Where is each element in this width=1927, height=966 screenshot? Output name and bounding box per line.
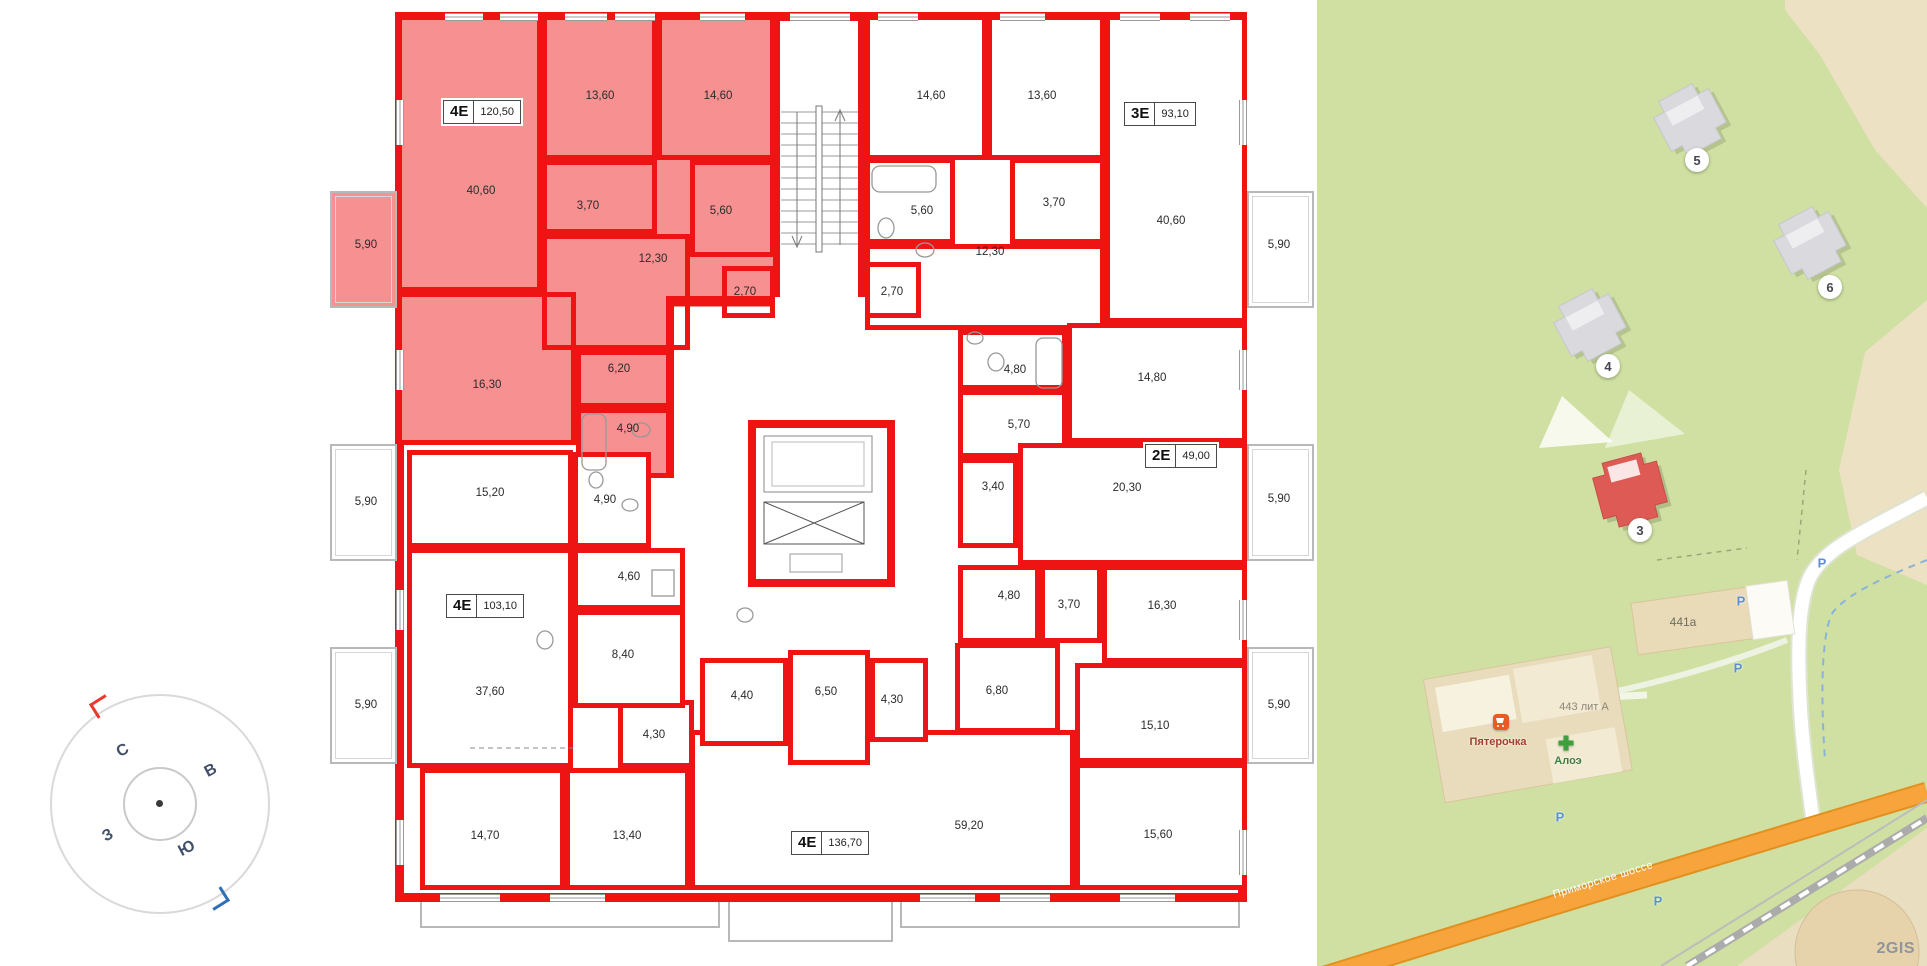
screenshot: 4Е 120,50 3Е 93,10 2Е 49,00 4Е 103,10 4Е… bbox=[0, 0, 1927, 966]
room-area-label: 4,30 bbox=[643, 729, 665, 741]
room-area-label: 4,80 bbox=[998, 590, 1020, 602]
apartment-type: 4Е bbox=[447, 595, 477, 617]
room bbox=[958, 565, 1040, 643]
room bbox=[865, 158, 955, 244]
building-badge-3[interactable]: 3 bbox=[1628, 518, 1652, 542]
room bbox=[542, 15, 657, 160]
window-bay bbox=[900, 902, 1240, 928]
room-area-label: 5,60 bbox=[911, 205, 933, 217]
room-area-label: 3,70 bbox=[1058, 599, 1080, 611]
window-bay bbox=[728, 902, 893, 942]
room-area-label: 5,90 bbox=[355, 699, 377, 711]
window bbox=[1120, 13, 1160, 21]
room-area-label: 6,80 bbox=[986, 685, 1008, 697]
room-area-label: 15,10 bbox=[1141, 720, 1170, 732]
room-area-label: 14,60 bbox=[917, 90, 946, 102]
parking-icon[interactable]: P bbox=[1654, 894, 1663, 909]
room bbox=[397, 292, 576, 445]
building-badge-4[interactable]: 4 bbox=[1596, 354, 1620, 378]
room-area-label: 3,40 bbox=[982, 481, 1004, 493]
parking-icon[interactable]: P bbox=[1556, 810, 1565, 825]
room-area-label: 5,90 bbox=[355, 239, 377, 251]
room-area-label: 20,30 bbox=[1113, 482, 1142, 494]
map-graphics bbox=[1317, 0, 1927, 966]
room-area-label: 4,30 bbox=[881, 694, 903, 706]
parking-icon[interactable]: P bbox=[1734, 661, 1743, 676]
room bbox=[788, 650, 870, 765]
apartment-area: 103,10 bbox=[477, 595, 523, 617]
shop-label[interactable]: Пятерочка bbox=[1469, 736, 1526, 748]
room-area-label: 14,80 bbox=[1138, 372, 1167, 384]
room-area-label: 4,40 bbox=[731, 690, 753, 702]
room-area-label: 12,30 bbox=[976, 246, 1005, 258]
room-area-label: 37,60 bbox=[476, 686, 505, 698]
apartment-area: 49,00 bbox=[1176, 445, 1216, 467]
window bbox=[1000, 894, 1050, 902]
room bbox=[1105, 15, 1247, 323]
room-area-label: 40,60 bbox=[1157, 215, 1186, 227]
floorplan-panel: 4Е 120,50 3Е 93,10 2Е 49,00 4Е 103,10 4Е… bbox=[0, 0, 1317, 966]
room-area-label: 13,40 bbox=[613, 830, 642, 842]
window bbox=[1190, 13, 1230, 21]
room bbox=[407, 450, 573, 548]
room-area-label: 15,60 bbox=[1144, 829, 1173, 841]
pharmacy-label[interactable]: Алоэ bbox=[1554, 755, 1581, 767]
apartment-type: 2Е bbox=[1146, 445, 1176, 467]
window bbox=[1239, 350, 1247, 390]
compass-center-dot bbox=[156, 800, 163, 807]
room-area-label: 3,70 bbox=[1043, 197, 1065, 209]
room bbox=[397, 15, 542, 292]
window bbox=[615, 13, 655, 21]
room-area-label: 8,40 bbox=[612, 649, 634, 661]
window bbox=[1000, 13, 1045, 21]
elevator-core bbox=[748, 420, 895, 587]
apartment-type: 4Е bbox=[444, 101, 474, 123]
window bbox=[1239, 600, 1247, 640]
window bbox=[920, 894, 975, 902]
room-area-label: 12,30 bbox=[639, 253, 668, 265]
room-area-label: 2,70 bbox=[881, 286, 903, 298]
room-area-label: 40,60 bbox=[467, 185, 496, 197]
apartment-label-box[interactable]: 4Е 136,70 bbox=[791, 831, 869, 855]
parking-icon[interactable]: P bbox=[1818, 556, 1827, 571]
room bbox=[700, 658, 788, 746]
room-area-label: 5,60 bbox=[710, 205, 732, 217]
window bbox=[396, 350, 404, 390]
room-area-label: 4,90 bbox=[617, 423, 639, 435]
window bbox=[396, 100, 404, 145]
window bbox=[1239, 100, 1247, 145]
apartment-type: 4Е bbox=[792, 832, 822, 854]
room bbox=[565, 768, 690, 890]
apartment-area: 136,70 bbox=[822, 832, 868, 854]
room bbox=[407, 548, 573, 768]
room-area-label: 13,60 bbox=[1028, 90, 1057, 102]
room-area-label: 4,60 bbox=[618, 571, 640, 583]
room-area-label: 3,70 bbox=[577, 200, 599, 212]
room-area-label: 14,60 bbox=[704, 90, 733, 102]
room-area-label: 4,90 bbox=[594, 494, 616, 506]
room bbox=[690, 160, 775, 257]
staircase bbox=[773, 21, 865, 297]
room bbox=[1075, 663, 1247, 763]
room-area-label: 5,90 bbox=[1268, 699, 1290, 711]
window bbox=[396, 820, 404, 865]
building-badge-5[interactable]: 5 bbox=[1685, 148, 1709, 172]
apartment-label-box[interactable]: 4Е 120,50 bbox=[443, 100, 521, 124]
room-area-label: 6,50 bbox=[815, 686, 837, 698]
apartment-type: 3Е bbox=[1125, 103, 1155, 125]
room-area-label: 16,30 bbox=[1148, 600, 1177, 612]
window bbox=[445, 13, 483, 21]
window bbox=[700, 13, 745, 21]
shop-icon[interactable] bbox=[1493, 714, 1509, 730]
window bbox=[396, 590, 404, 630]
room bbox=[987, 15, 1105, 160]
apartment-label-box[interactable]: 2Е 49,00 bbox=[1145, 444, 1217, 468]
room-area-label: 16,30 bbox=[473, 379, 502, 391]
compass: С В Ю З bbox=[50, 694, 270, 914]
room bbox=[958, 458, 1018, 548]
map-panel[interactable]: 5 6 4 3 441а 443 лит А Пятерочка Алоэ Пр… bbox=[1317, 0, 1927, 966]
room bbox=[420, 768, 565, 890]
room bbox=[958, 330, 1067, 390]
room-area-label: 15,20 bbox=[476, 487, 505, 499]
window bbox=[790, 13, 850, 21]
building-443-label[interactable]: 443 лит А bbox=[1559, 701, 1608, 713]
room-area-label: 4,80 bbox=[1004, 364, 1026, 376]
room bbox=[542, 160, 657, 234]
room bbox=[1102, 565, 1247, 663]
room bbox=[1075, 763, 1247, 890]
wall bbox=[672, 296, 775, 306]
window bbox=[878, 13, 918, 21]
room-area-label: 59,20 bbox=[955, 820, 984, 832]
window bbox=[550, 894, 605, 902]
window bbox=[565, 13, 607, 21]
room-area-label: 2,70 bbox=[734, 286, 756, 298]
room bbox=[576, 350, 672, 408]
window bbox=[1120, 894, 1175, 902]
window bbox=[440, 894, 500, 902]
room-area-label: 6,20 bbox=[608, 363, 630, 375]
room-area-label: 5,90 bbox=[1268, 493, 1290, 505]
watermark-2gis: 2GIS bbox=[1877, 940, 1915, 958]
room bbox=[690, 730, 1075, 890]
building-badge-6[interactable]: 6 bbox=[1818, 275, 1842, 299]
apartment-label-box[interactable]: 4Е 103,10 bbox=[446, 594, 524, 618]
parking-icon[interactable]: P bbox=[1737, 594, 1746, 609]
apartment-area: 120,50 bbox=[474, 101, 520, 123]
window bbox=[1239, 830, 1247, 875]
room-area-label: 5,90 bbox=[1268, 239, 1290, 251]
apartment-label-box[interactable]: 3Е 93,10 bbox=[1124, 102, 1196, 126]
room-area-label: 5,70 bbox=[1008, 419, 1030, 431]
window-bay bbox=[420, 902, 720, 928]
room-area-label: 5,90 bbox=[355, 496, 377, 508]
building-441a-label[interactable]: 441а bbox=[1670, 615, 1697, 629]
pharmacy-cross-icon[interactable] bbox=[1559, 736, 1574, 751]
room-area-label: 14,70 bbox=[471, 830, 500, 842]
room bbox=[657, 15, 775, 160]
wall bbox=[666, 296, 674, 478]
apartment-area: 93,10 bbox=[1155, 103, 1195, 125]
room-area-label: 13,60 bbox=[586, 90, 615, 102]
window bbox=[500, 13, 538, 21]
room bbox=[865, 15, 987, 160]
